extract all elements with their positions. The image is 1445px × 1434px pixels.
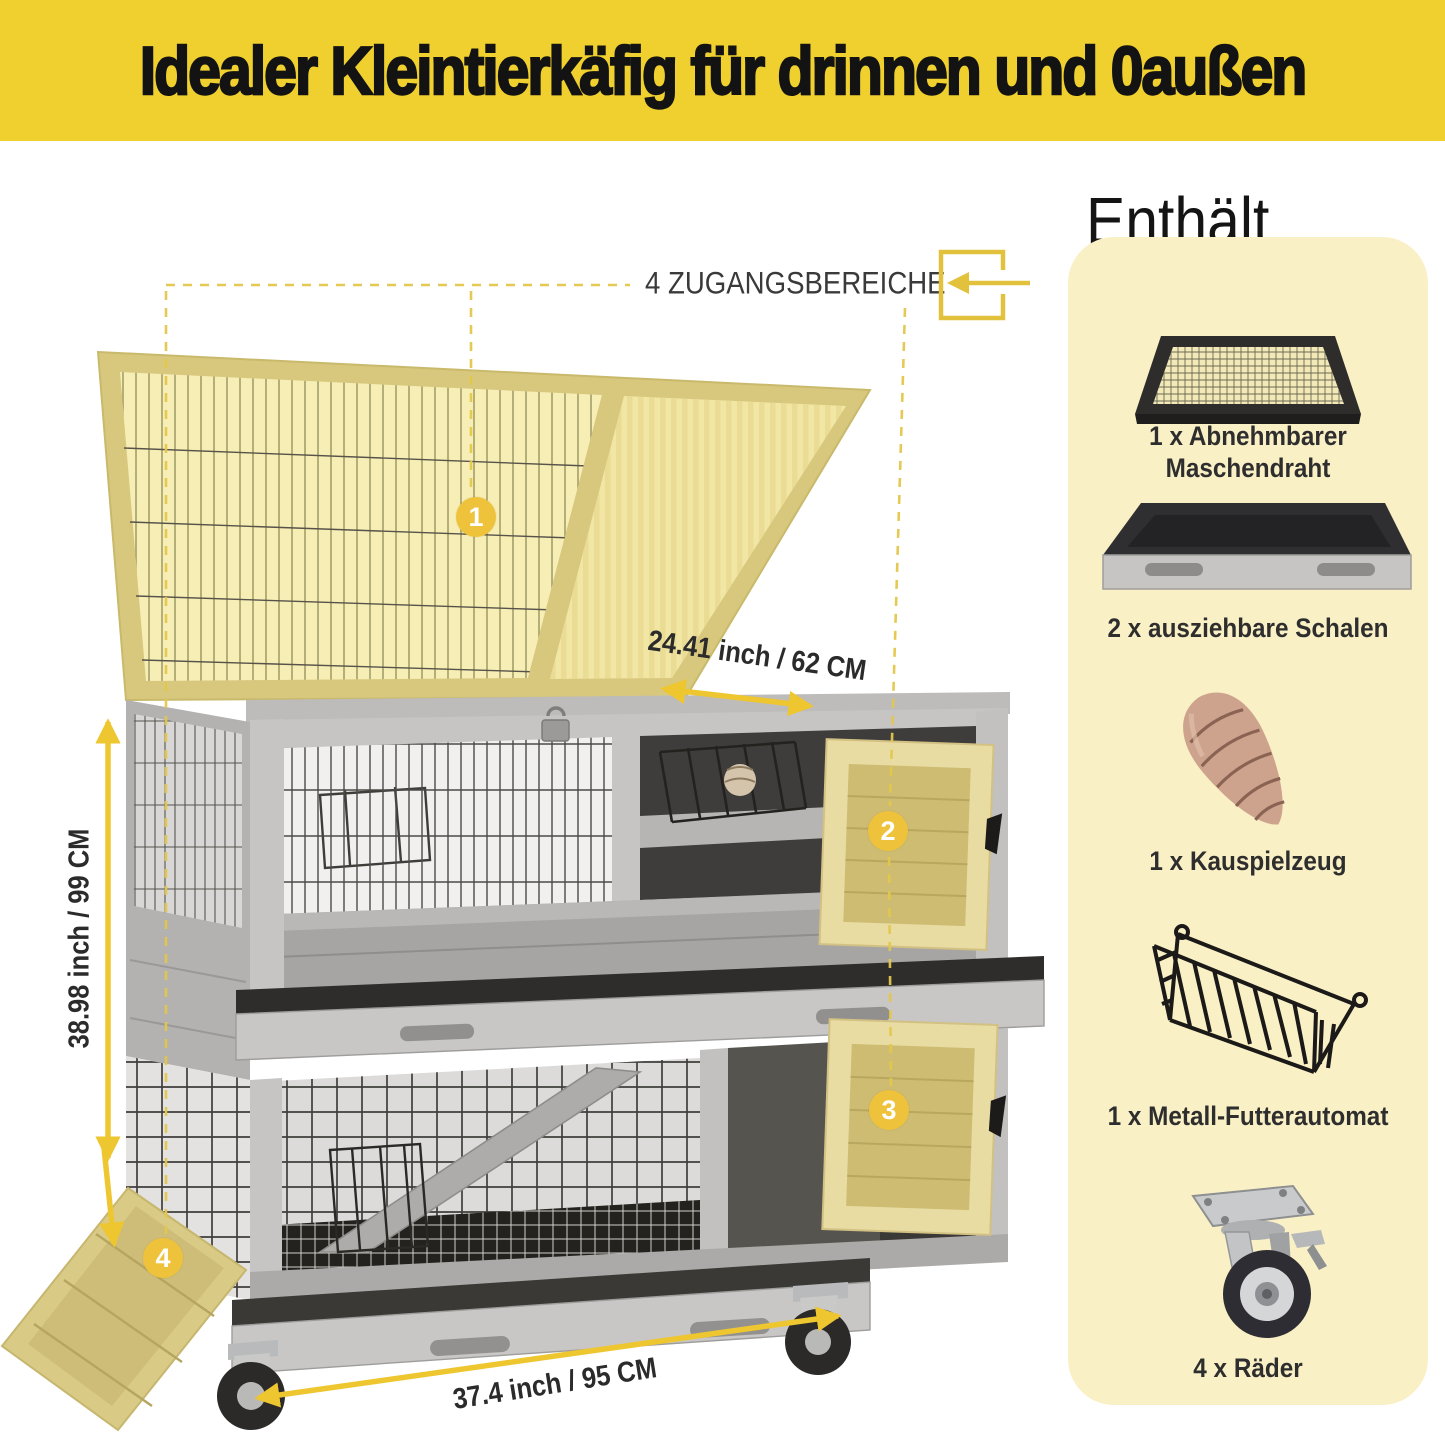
caster-wheel-right — [785, 1282, 851, 1375]
lower-door — [822, 1019, 1008, 1235]
callout-2: 2 — [868, 811, 908, 851]
slide-out-tray-icon — [1083, 495, 1413, 607]
callout-4: 4 — [143, 1238, 183, 1278]
enter-arrow-icon — [933, 242, 1033, 326]
item-label-mesh-panel: 1 x Abnehmbarer Maschendraht — [1086, 420, 1410, 484]
product-infographic: Idealer Kleintierkäfig für drinnen und 0… — [0, 0, 1445, 1434]
caster-wheel-icon — [1163, 1180, 1333, 1340]
dimension-height: 38.98 inch / 99 CM — [64, 807, 97, 1071]
callout-1: 1 — [456, 497, 496, 537]
upper-door — [819, 739, 1004, 950]
item-label-trays: 2 x ausziehbare Schalen — [1086, 612, 1410, 644]
callout-3: 3 — [869, 1090, 909, 1130]
item-label-wheels: 4 x Räder — [1086, 1352, 1410, 1384]
cage-body — [2, 692, 1044, 1430]
item-label-chew-toy: 1 x Kauspielzeug — [1086, 845, 1410, 877]
mesh-panel-icon — [1133, 328, 1363, 428]
caster-wheel-left — [217, 1340, 285, 1430]
chew-toy-icon — [1163, 680, 1313, 840]
access-areas-label: 4 ZUGANGSBEREICHE — [645, 266, 921, 302]
metal-feeder-icon — [1118, 920, 1378, 1090]
item-label-feeder: 1 x Metall-Futterautomat — [1086, 1100, 1410, 1132]
upper-hutch-side — [126, 700, 250, 1080]
